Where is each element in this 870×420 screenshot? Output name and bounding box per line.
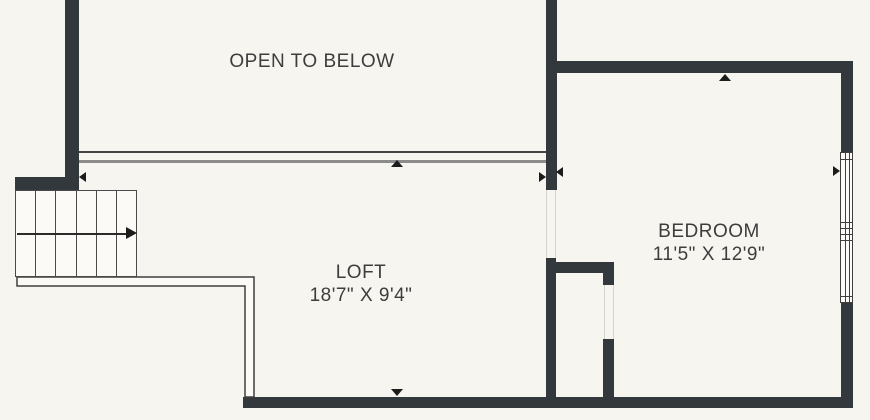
wall-marker-left-icon [556,167,563,177]
bedroom-room-dimensions: 11'5" X 12'9" [609,243,809,266]
bedroom-room-name: BEDROOM [609,220,809,243]
stair-direction-arrow-icon [126,227,137,239]
wall-middle-lower [546,258,556,397]
wall-bedroom-top [546,61,853,73]
wall-right-upper [841,61,853,153]
stair-direction-line [17,233,127,235]
bedroom-window [840,152,853,303]
wall-marker-down-icon [391,389,403,396]
wall-marker-up-icon [719,74,731,81]
loft-label: LOFT 18'7" X 9'4" [261,261,461,307]
wall-bottom [243,397,853,408]
window-marker-right-icon [833,166,840,176]
wall-closet-door-jamb [603,273,614,285]
wall-left-upper [65,0,79,190]
wall-marker-right-icon [539,172,546,182]
wall-right-lower [841,302,853,408]
railing-loft-edge [16,276,256,399]
doorway-loft-bedroom-line-right [555,190,556,258]
railing-open-to-below-lower-line [79,160,546,163]
loft-room-dimensions: 18'7" X 9'4" [261,284,461,307]
bedroom-label: BEDROOM 11'5" X 12'9" [609,220,809,266]
wall-marker-left-icon [79,172,86,182]
railing-open-to-below-upper-line [79,151,546,153]
window-frame-line [841,240,852,241]
window-frame-line [841,228,852,229]
wall-closet-right [603,339,614,397]
doorway-closet-line-left [604,285,605,339]
railing-marker-up-icon [391,160,403,167]
wall-stair-head-stub [15,177,79,190]
wall-middle-upper [546,0,557,190]
open-to-below-label: OPEN TO BELOW [192,50,432,73]
doorway-closet-line-right [613,285,614,339]
window-frame-line [841,159,852,160]
window-frame-line [841,296,852,297]
doorway-loft-bedroom-line-left [546,190,547,258]
loft-room-name: LOFT [261,261,461,284]
wall-closet-top [556,262,614,273]
window-frame-line [841,222,852,223]
open-to-below-text: OPEN TO BELOW [229,51,394,72]
window-frame-line [841,234,852,235]
floor-plan: OPEN TO BELOW LOFT 18'7" X 9'4" BEDROOM … [0,0,870,420]
